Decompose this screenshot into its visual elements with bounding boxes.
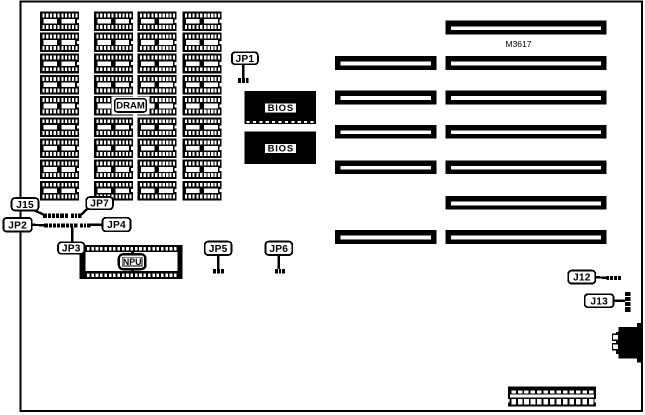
svg-text:JP7: JP7 — [90, 199, 109, 210]
svg-text:J12: J12 — [573, 273, 591, 284]
svg-text:DRAM: DRAM — [116, 101, 145, 112]
svg-text:J13: J13 — [590, 296, 608, 307]
svg-text:M3617: M3617 — [506, 39, 532, 49]
svg-text:JP1: JP1 — [236, 54, 255, 65]
svg-text:J15: J15 — [16, 200, 34, 211]
svg-text:NPU: NPU — [123, 257, 142, 267]
svg-text:JP3: JP3 — [62, 244, 81, 255]
svg-text:BIOS: BIOS — [268, 103, 294, 114]
svg-text:JP5: JP5 — [209, 244, 228, 255]
svg-text:BIOS: BIOS — [268, 143, 294, 154]
svg-text:JP4: JP4 — [107, 220, 126, 231]
svg-text:JP2: JP2 — [8, 220, 27, 231]
svg-text:JP6: JP6 — [269, 244, 288, 255]
